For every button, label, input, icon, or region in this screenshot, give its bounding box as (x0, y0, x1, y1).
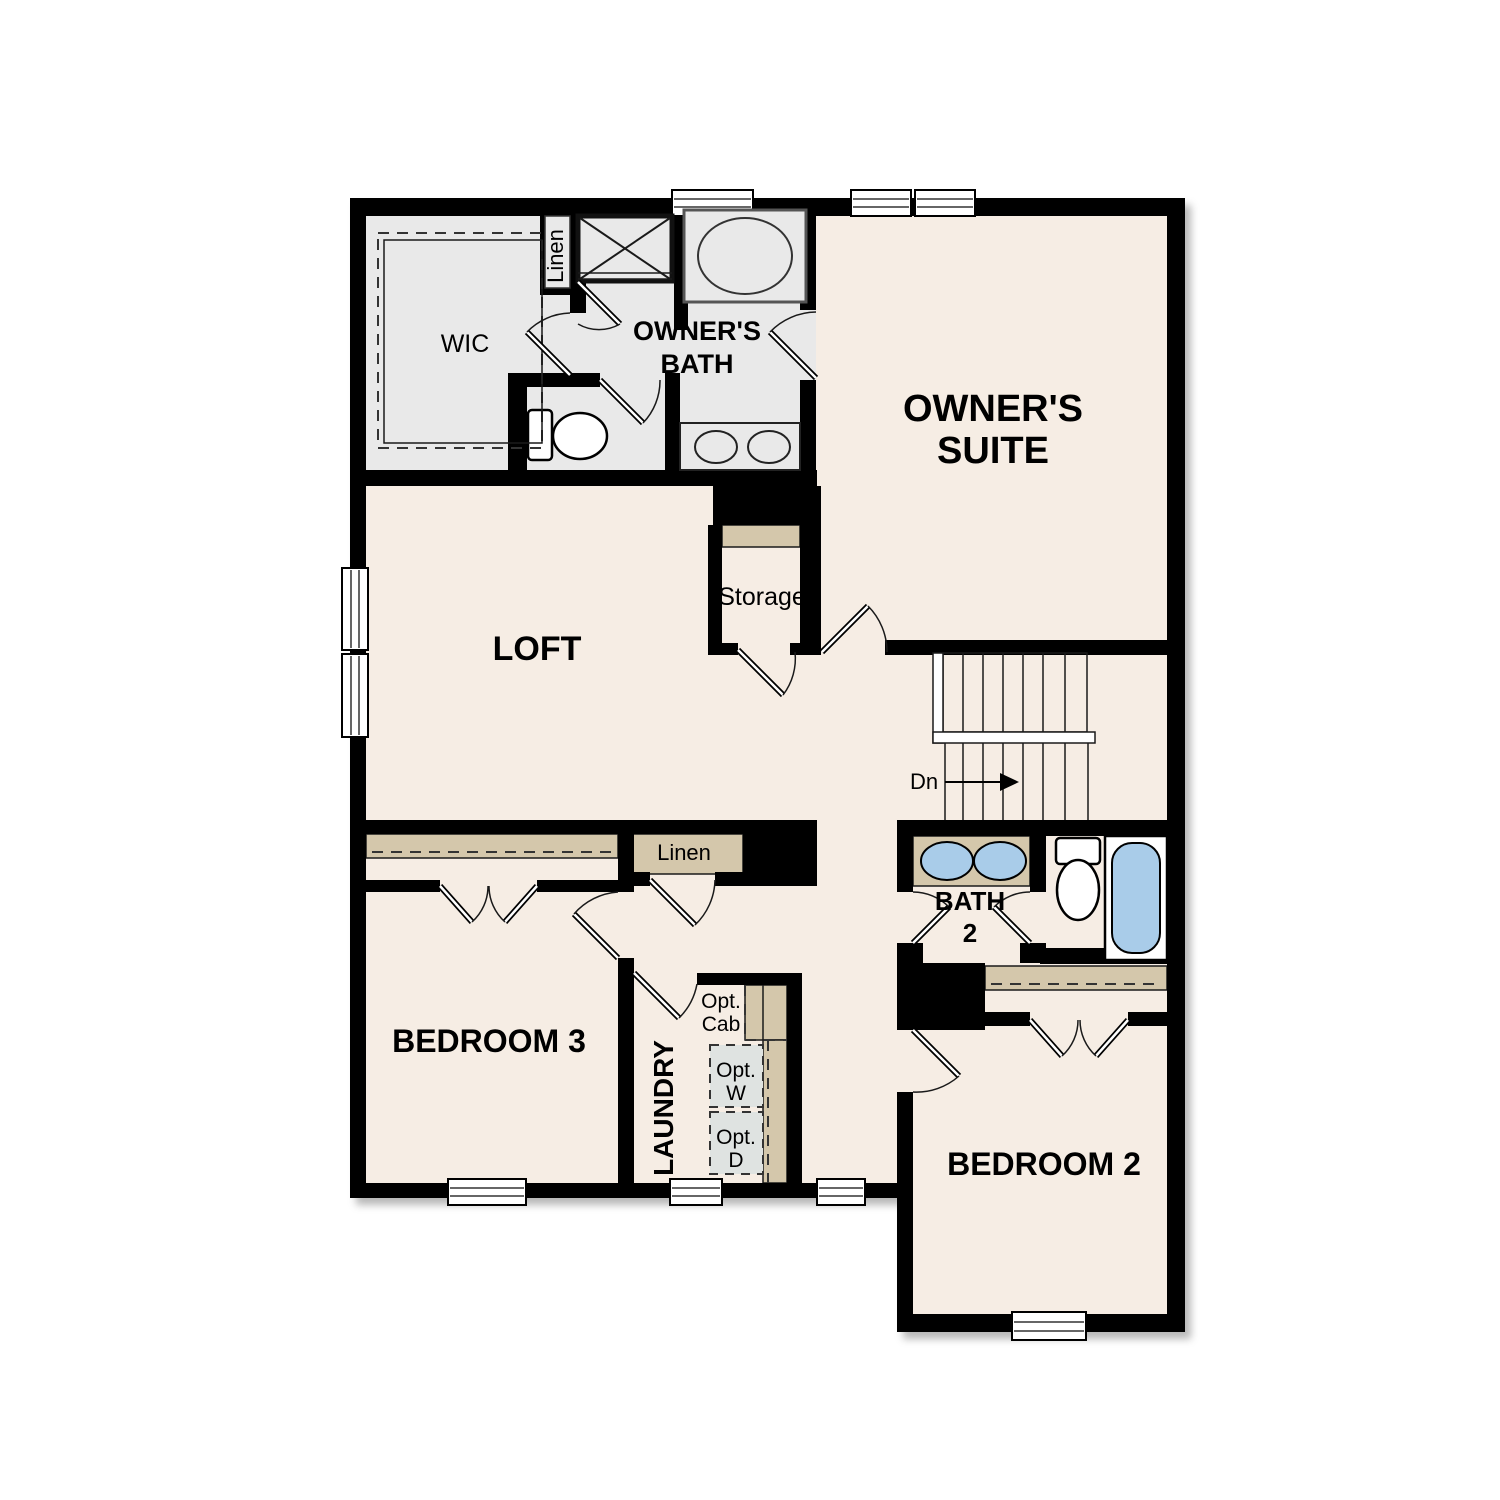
window (851, 190, 911, 216)
label-opt-dryer-line2: D (728, 1149, 743, 1172)
label-opt-cab-line1: Opt. (701, 990, 741, 1013)
room-label-storage: Storage (718, 583, 806, 611)
room-label-loft: LOFT (493, 630, 582, 668)
laundry-cabinet-counter (745, 985, 787, 1040)
bedroom2-closet-shelf (985, 966, 1167, 990)
room-label-owners-suite-line2: SUITE (937, 430, 1049, 472)
room-label-linen-upper: Linen (543, 229, 568, 283)
window (342, 568, 368, 650)
room-label-bedroom3: BEDROOM 3 (392, 1023, 586, 1059)
window (817, 1179, 865, 1205)
window (915, 190, 975, 216)
room-label-laundry: LAUNDRY (648, 1040, 679, 1176)
double-vanity-icon (680, 423, 800, 470)
stair-landing-rail (933, 732, 1095, 743)
label-opt-washer-line1: Opt. (716, 1059, 756, 1082)
shower-icon (578, 216, 672, 281)
bedroom3-closet-shelf (366, 834, 618, 858)
laundry-counter-strip (763, 1040, 787, 1183)
room-label-bath2-line1: BATH (935, 886, 1005, 916)
window (448, 1179, 526, 1205)
room-label-linen-lower: Linen (657, 840, 711, 865)
floor-plan: WIC Linen OWNER'S BATH OWNER'S SUITE LOF… (0, 0, 1500, 1500)
stairs-down-label: Dn (910, 769, 938, 794)
floor-plan-page: WIC Linen OWNER'S BATH OWNER'S SUITE LOF… (0, 0, 1500, 1500)
room-label-bedroom2: BEDROOM 2 (947, 1146, 1141, 1182)
room-label-owners-suite-line1: OWNER'S (903, 388, 1083, 430)
storage-shelf (722, 525, 800, 547)
stair-rail (933, 653, 943, 743)
toilet-icon (1056, 838, 1100, 920)
toilet-icon (528, 410, 607, 460)
room-label-owners-bath-line1: OWNER'S (633, 316, 761, 346)
window (1012, 1312, 1086, 1340)
bathtub-icon (684, 210, 806, 302)
label-opt-cab-line2: Cab (702, 1013, 741, 1036)
window (670, 1179, 722, 1205)
room-label-wic: WIC (441, 330, 490, 358)
room-label-owners-bath-line2: BATH (661, 349, 734, 379)
label-opt-dryer-line1: Opt. (716, 1126, 756, 1149)
room-label-bath2-line2: 2 (963, 918, 977, 948)
bathtub-icon (1105, 836, 1167, 960)
window (342, 654, 368, 737)
label-opt-washer-line2: W (726, 1082, 746, 1105)
